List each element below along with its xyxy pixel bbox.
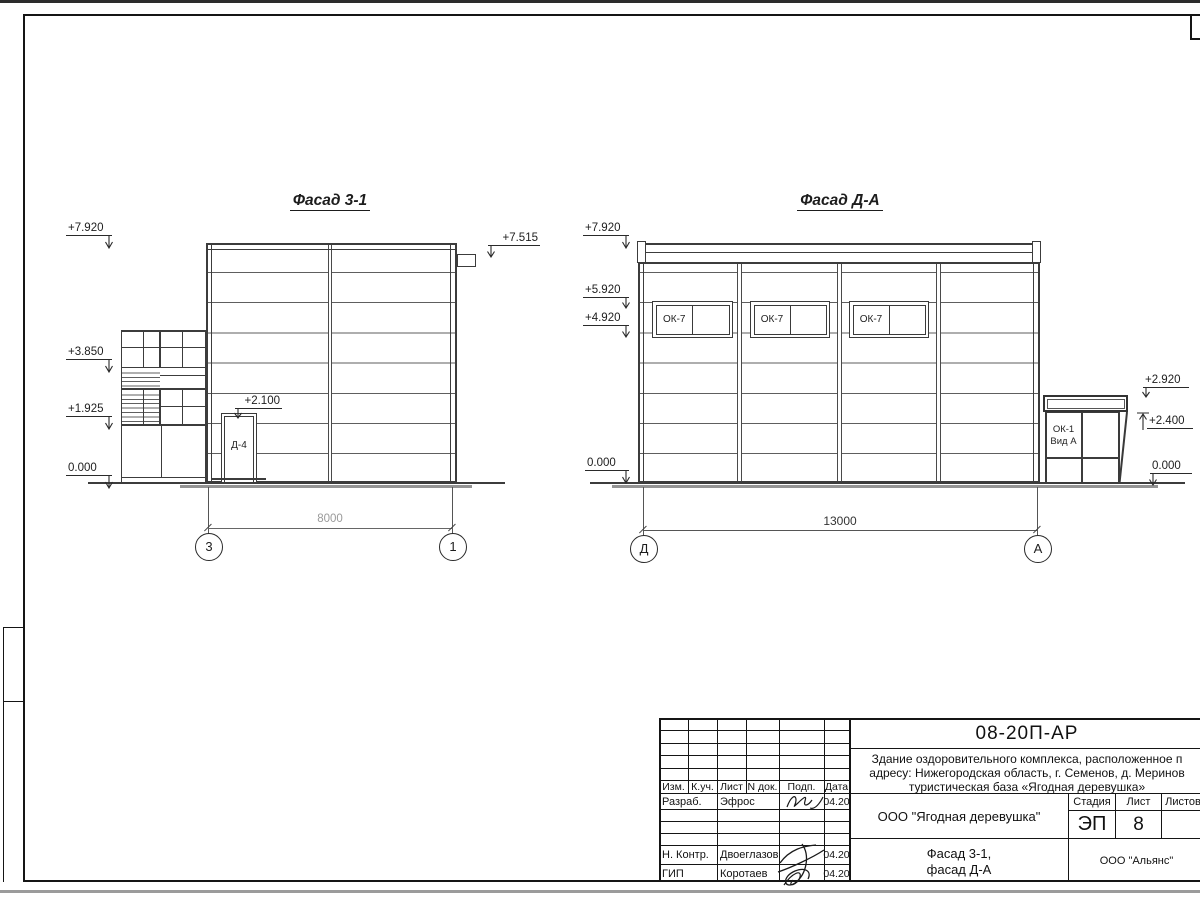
drawing-sheet: Фасад 3-1 Д-4 +7.920 +3.850 +1.925 bbox=[0, 0, 1200, 900]
axis-label: А bbox=[1034, 541, 1043, 556]
elevation-value: +2.100 bbox=[235, 395, 282, 409]
sheet-header: Лист bbox=[1116, 794, 1161, 810]
drawing-name-line: Фасад 3-1, bbox=[850, 846, 1068, 862]
down-arrow-icon bbox=[103, 417, 115, 430]
date-razrab: 04.20 bbox=[824, 794, 849, 809]
top-edge-strip bbox=[0, 0, 1200, 3]
elevation-mark: +7.515 bbox=[488, 232, 540, 246]
porch-canopy bbox=[1043, 395, 1128, 412]
dimension-label: 13000 bbox=[800, 514, 880, 528]
line bbox=[211, 245, 212, 481]
down-arrow-icon bbox=[103, 236, 115, 249]
down-arrow-icon bbox=[103, 476, 115, 489]
elevation-value: +7.515 bbox=[488, 232, 540, 246]
panel-joint bbox=[328, 245, 332, 481]
axis-label: 1 bbox=[449, 539, 456, 554]
line bbox=[182, 390, 183, 424]
axis-label: 3 bbox=[205, 539, 212, 554]
window-label: ОК-7 bbox=[755, 306, 791, 334]
panel-joint bbox=[837, 264, 842, 481]
signature-razrab bbox=[783, 791, 825, 815]
corner-post bbox=[1032, 241, 1041, 263]
ground-base bbox=[180, 485, 472, 488]
stair-louvers bbox=[144, 391, 159, 423]
name-gip: Коротаев bbox=[720, 866, 780, 881]
line bbox=[3, 627, 24, 628]
down-arrow-icon bbox=[232, 409, 244, 419]
axis-label: Д bbox=[640, 541, 649, 556]
dimension-label: 8000 bbox=[290, 513, 370, 525]
signature-nkontr-gip bbox=[772, 841, 828, 893]
ground-base bbox=[612, 485, 1158, 488]
drawing-name: Фасад 3-1, фасад Д-А bbox=[850, 846, 1068, 877]
window-ok7: ОК-7 bbox=[652, 301, 733, 338]
down-arrow-icon bbox=[1140, 388, 1152, 398]
down-arrow-icon bbox=[620, 326, 632, 338]
elevation-mark: +2.920 bbox=[1143, 374, 1189, 388]
role-gip: ГИП bbox=[662, 866, 717, 881]
role-razrab: Разраб. bbox=[662, 794, 717, 809]
corner-box bbox=[1190, 14, 1200, 40]
axis-bubble: А bbox=[1024, 535, 1052, 563]
axis-bubble: Д bbox=[630, 535, 658, 563]
line bbox=[1081, 413, 1083, 483]
elevation-mark: 0.000 bbox=[1150, 460, 1192, 474]
document-code: 08-20П-АР bbox=[850, 719, 1200, 748]
down-arrow-icon bbox=[620, 471, 632, 484]
drawing-name-line: фасад Д-А bbox=[850, 862, 1068, 878]
door-step bbox=[212, 478, 266, 480]
dimension-line bbox=[208, 528, 453, 529]
line bbox=[161, 406, 205, 407]
window-ok7: ОК-7 bbox=[849, 301, 929, 338]
window-ok7: ОК-7 bbox=[750, 301, 830, 338]
firm-name: ООО "Альянс" bbox=[1069, 839, 1200, 882]
stage-value: ЭП bbox=[1069, 811, 1115, 838]
line bbox=[122, 367, 205, 368]
description-line: Здание оздоровительного комплекса, распо… bbox=[850, 752, 1200, 766]
line bbox=[450, 245, 451, 481]
elevation-value: +7.920 bbox=[583, 222, 629, 236]
line bbox=[161, 426, 162, 477]
name-razrab: Эфрос bbox=[720, 794, 778, 809]
down-arrow-icon bbox=[620, 298, 632, 309]
window-label: ОК-7 bbox=[657, 306, 694, 334]
elevation-value: +7.920 bbox=[66, 222, 112, 236]
frame-bottom bbox=[23, 880, 1200, 882]
elevation-value: +4.920 bbox=[583, 312, 629, 326]
line bbox=[159, 390, 161, 424]
line bbox=[643, 245, 644, 481]
organization-name: ООО "Ягодная деревушка" bbox=[850, 794, 1068, 838]
elevation-mark: +3.850 bbox=[66, 346, 112, 360]
col-header-izm: Изм. bbox=[659, 781, 688, 793]
elevation-value: +5.920 bbox=[583, 284, 629, 298]
line bbox=[659, 833, 849, 834]
axis-bubble: 1 bbox=[439, 533, 467, 561]
col-header-ndok: N док. bbox=[746, 781, 779, 793]
col-header-list: Лист bbox=[717, 781, 746, 793]
line bbox=[1045, 457, 1120, 459]
line bbox=[182, 332, 183, 368]
description-line: туристическая база «Ягодная деревушка» bbox=[850, 780, 1200, 793]
line bbox=[159, 332, 161, 368]
line bbox=[3, 701, 24, 702]
ground-line bbox=[590, 482, 1185, 484]
parapet-line bbox=[640, 252, 1038, 253]
sheets-header: Листов bbox=[1162, 794, 1200, 810]
role-nkontr: Н. Контр. bbox=[662, 847, 717, 863]
axis-bubble: 3 bbox=[195, 533, 223, 561]
elevation-value: +2.400 bbox=[1147, 415, 1193, 429]
porch-label-line: ОК-1 bbox=[1047, 424, 1080, 436]
line bbox=[659, 821, 849, 822]
parapet-line bbox=[208, 249, 455, 250]
elevation-mark: +4.920 bbox=[583, 312, 629, 326]
frame-left bbox=[23, 14, 25, 882]
panel-joint bbox=[936, 264, 941, 481]
porch-label-line: Вид А bbox=[1047, 436, 1080, 448]
elevation-value: 0.000 bbox=[1150, 460, 1192, 474]
line bbox=[1033, 245, 1034, 481]
description-line: адресу: Нижегородская область, г. Семено… bbox=[850, 766, 1200, 780]
sheet-number: 8 bbox=[1116, 811, 1161, 838]
elevation-value: +2.920 bbox=[1143, 374, 1189, 388]
project-description: Здание оздоровительного комплекса, распо… bbox=[850, 749, 1200, 793]
elevation-value: +3.850 bbox=[66, 346, 112, 360]
elevation-mark: +5.920 bbox=[583, 284, 629, 298]
line bbox=[160, 375, 205, 376]
frame-top bbox=[23, 14, 1200, 16]
line bbox=[122, 347, 205, 348]
line bbox=[122, 477, 205, 478]
line bbox=[717, 718, 718, 882]
stair-louvers bbox=[122, 369, 160, 387]
bottom-edge-strip bbox=[0, 890, 1200, 893]
stage-header: Стадия bbox=[1069, 794, 1115, 810]
col-header-kuch: К.уч. bbox=[688, 781, 717, 793]
elevation-mark: 0.000 bbox=[66, 462, 112, 476]
elevation-mark: +7.920 bbox=[583, 222, 629, 236]
name-nkontr: Двоеглазов bbox=[720, 847, 780, 863]
down-arrow-icon bbox=[620, 236, 632, 249]
stamp-strip-left-line bbox=[3, 627, 4, 882]
elevation-value: 0.000 bbox=[585, 457, 629, 471]
down-arrow-icon bbox=[103, 360, 115, 373]
elevation-value: 0.000 bbox=[66, 462, 112, 476]
col-header-data: Дата bbox=[824, 781, 849, 793]
elevation-mark: +2.400 bbox=[1147, 415, 1193, 429]
elevation-mark: +1.925 bbox=[66, 403, 112, 417]
up-arrow-icon bbox=[1136, 411, 1150, 430]
porch-window-label: ОК-1 Вид А bbox=[1047, 424, 1080, 447]
elevation-mark: 0.000 bbox=[585, 457, 629, 471]
ground-line bbox=[88, 482, 505, 484]
elevation-value: +1.925 bbox=[66, 403, 112, 417]
line bbox=[122, 388, 205, 390]
elevation-mark: +2.100 bbox=[235, 395, 282, 409]
line bbox=[143, 332, 144, 368]
facade-3-1-title: Фасад 3-1 bbox=[250, 192, 410, 210]
facade-d-a-title: Фасад Д-А bbox=[760, 192, 920, 210]
stair-louvers bbox=[122, 391, 143, 423]
door-label: Д-4 bbox=[222, 440, 256, 451]
door-d4: Д-4 bbox=[221, 413, 257, 483]
panel-joint bbox=[737, 264, 742, 481]
roof-vent bbox=[457, 254, 476, 267]
window-label: ОК-7 bbox=[854, 306, 890, 334]
down-arrow-icon bbox=[485, 246, 497, 258]
line bbox=[122, 424, 205, 426]
down-arrow-icon bbox=[1147, 474, 1159, 486]
dimension-line bbox=[643, 530, 1037, 531]
corner-post bbox=[637, 241, 646, 263]
elevation-mark: +7.920 bbox=[66, 222, 112, 236]
